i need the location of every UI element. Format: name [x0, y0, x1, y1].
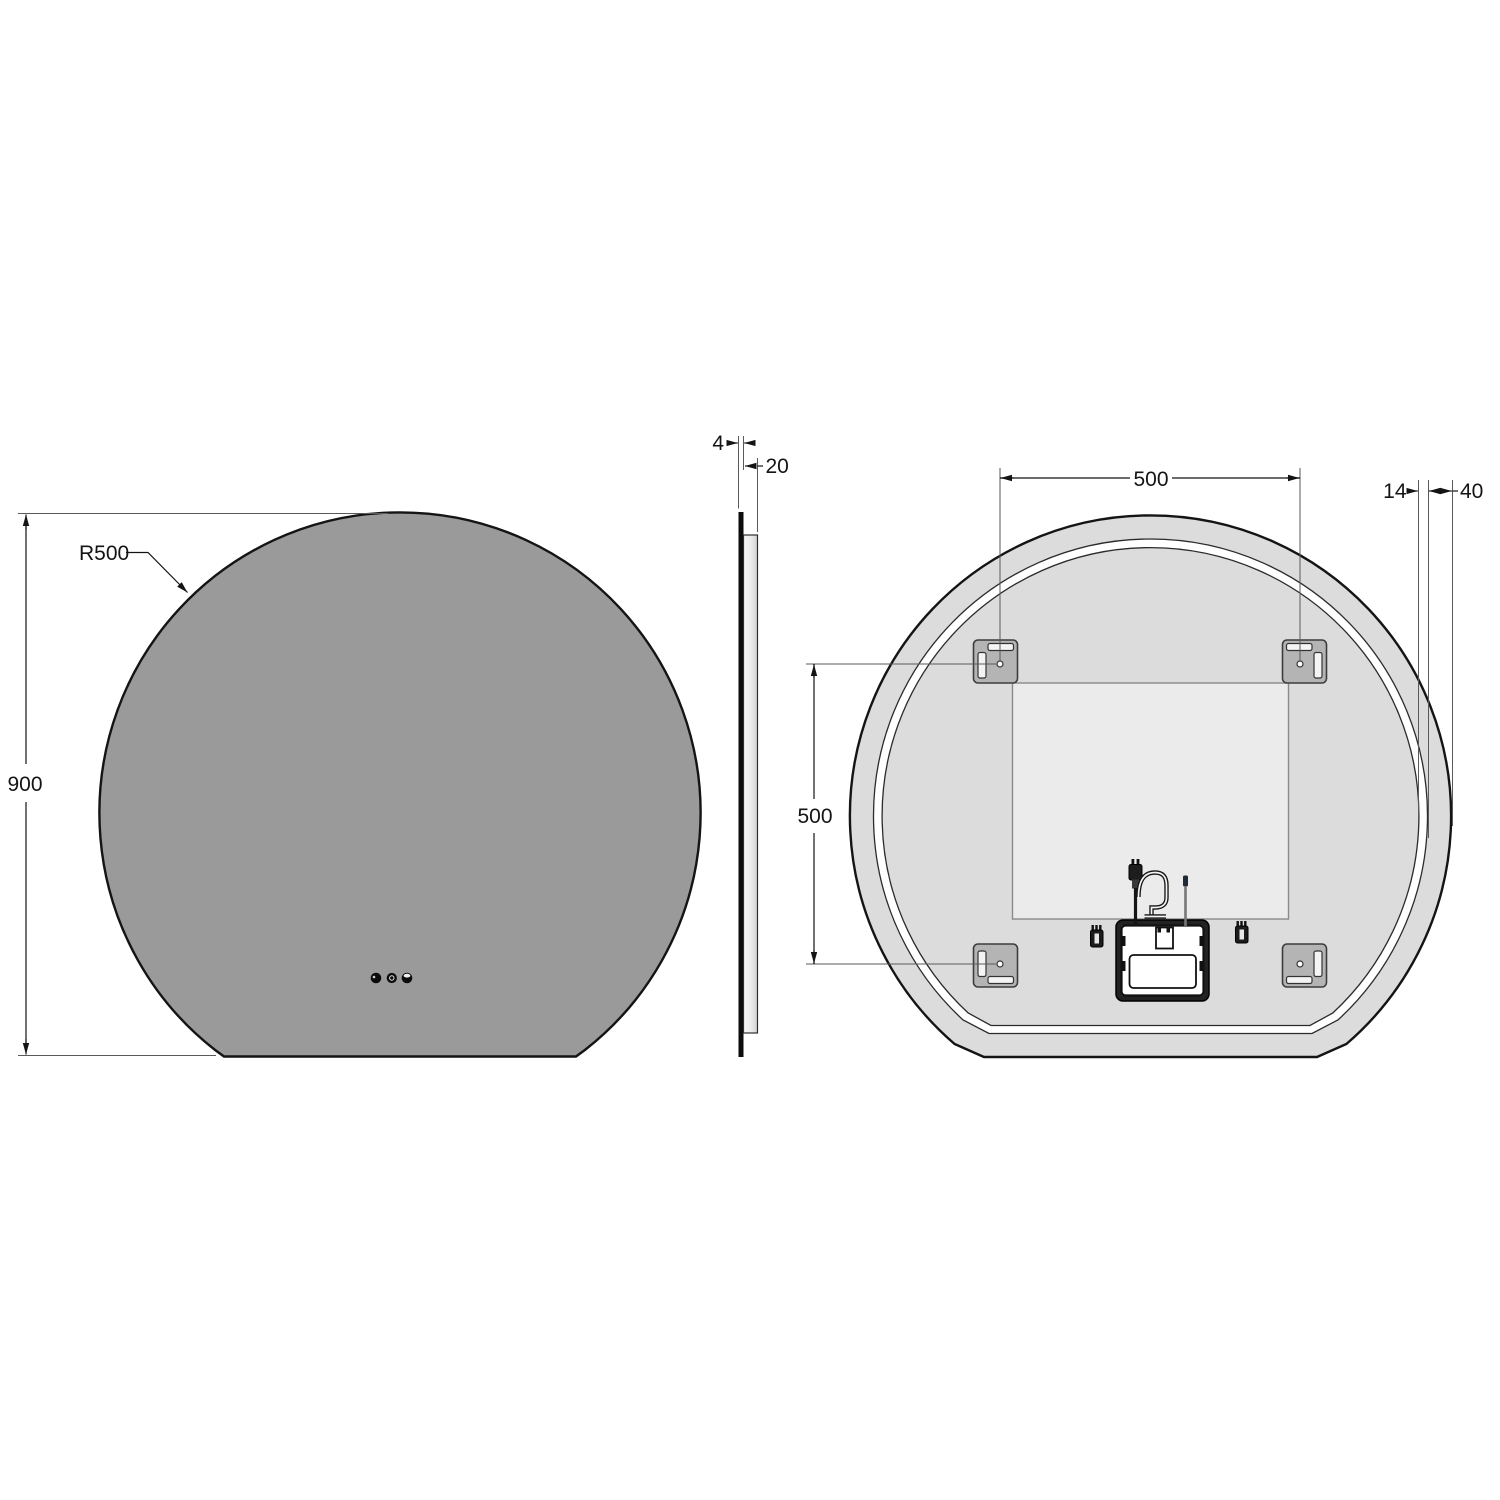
mirror-drawing: 900 R500 4 20 [0, 0, 1500, 1500]
rim-width-label: 40 [1460, 480, 1483, 503]
touch-controls [371, 973, 413, 984]
led-band-width-label: 14 [1383, 480, 1407, 503]
dim-glass-thickness-4: 4 [712, 432, 754, 509]
dim-radius-r500: R500 [79, 542, 188, 593]
mounting-bracket-bottom-left [974, 944, 1018, 987]
bracket-spacing-horizontal-label: 500 [1133, 468, 1168, 491]
height-dimension-label: 900 [7, 773, 42, 796]
cable-clip-right [1236, 921, 1249, 943]
touch-dimmer-icon [387, 973, 397, 983]
side-view: 4 20 [712, 432, 789, 1057]
junction-box-label-plate [1130, 955, 1197, 988]
mirror-glass-profile [739, 512, 744, 1057]
front-view: 900 R500 [7, 512, 700, 1056]
mirror-body-profile [744, 535, 758, 1033]
cable-clip-left [1091, 925, 1104, 947]
dim-depth-20: 20 [745, 455, 789, 532]
mounting-bracket-top-right [1283, 640, 1327, 683]
bracket-spacing-vertical-label: 500 [797, 805, 832, 828]
touch-power-icon [371, 973, 382, 984]
mounting-bracket-bottom-right [1283, 944, 1327, 987]
backlight-panel [1013, 683, 1289, 919]
glass-thickness-label: 4 [712, 432, 724, 455]
junction-box [1116, 920, 1209, 1001]
mirror-front-face [99, 512, 700, 1056]
power-plug-icon [1129, 865, 1142, 881]
depth-label: 20 [766, 455, 789, 478]
back-view: 500 500 14 40 [797, 468, 1483, 1057]
mounting-bracket-top-left [974, 640, 1018, 683]
radius-dimension-label: R500 [79, 542, 129, 565]
technical-drawing-canvas: 900 R500 4 20 [0, 0, 1500, 1500]
touch-defog-icon [402, 973, 413, 984]
